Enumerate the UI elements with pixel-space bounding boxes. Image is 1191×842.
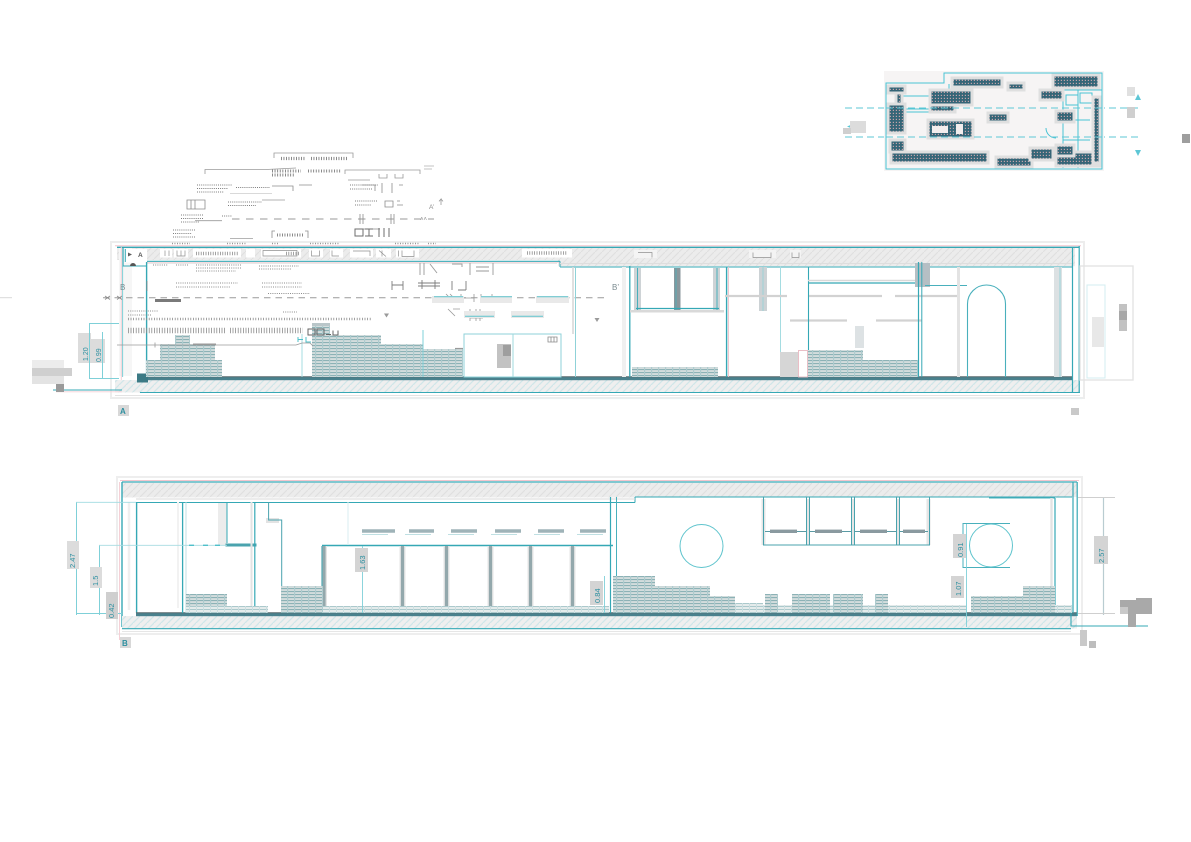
- svg-text:0.84: 0.84: [593, 588, 602, 603]
- svg-text:A: A: [138, 252, 143, 259]
- svg-text:1.63: 1.63: [358, 555, 367, 570]
- svg-text:1.5: 1.5: [91, 576, 100, 586]
- svg-text:1.20: 1.20: [83, 347, 90, 361]
- svg-text:1.07: 1.07: [954, 581, 963, 596]
- svg-text:A: A: [120, 407, 126, 416]
- svg-text:˄˄: ˄˄: [420, 217, 428, 223]
- svg-text:B: B: [120, 283, 125, 292]
- svg-text:2.47: 2.47: [68, 553, 77, 568]
- svg-text:0.42: 0.42: [107, 603, 116, 618]
- svg-text:A’: A’: [429, 204, 435, 211]
- svg-text:B’: B’: [612, 283, 619, 292]
- svg-text:0.99: 0.99: [96, 348, 103, 362]
- svg-text:B: B: [122, 639, 128, 648]
- svg-text:0.91: 0.91: [956, 542, 965, 557]
- svg-text:2.57: 2.57: [1097, 548, 1106, 563]
